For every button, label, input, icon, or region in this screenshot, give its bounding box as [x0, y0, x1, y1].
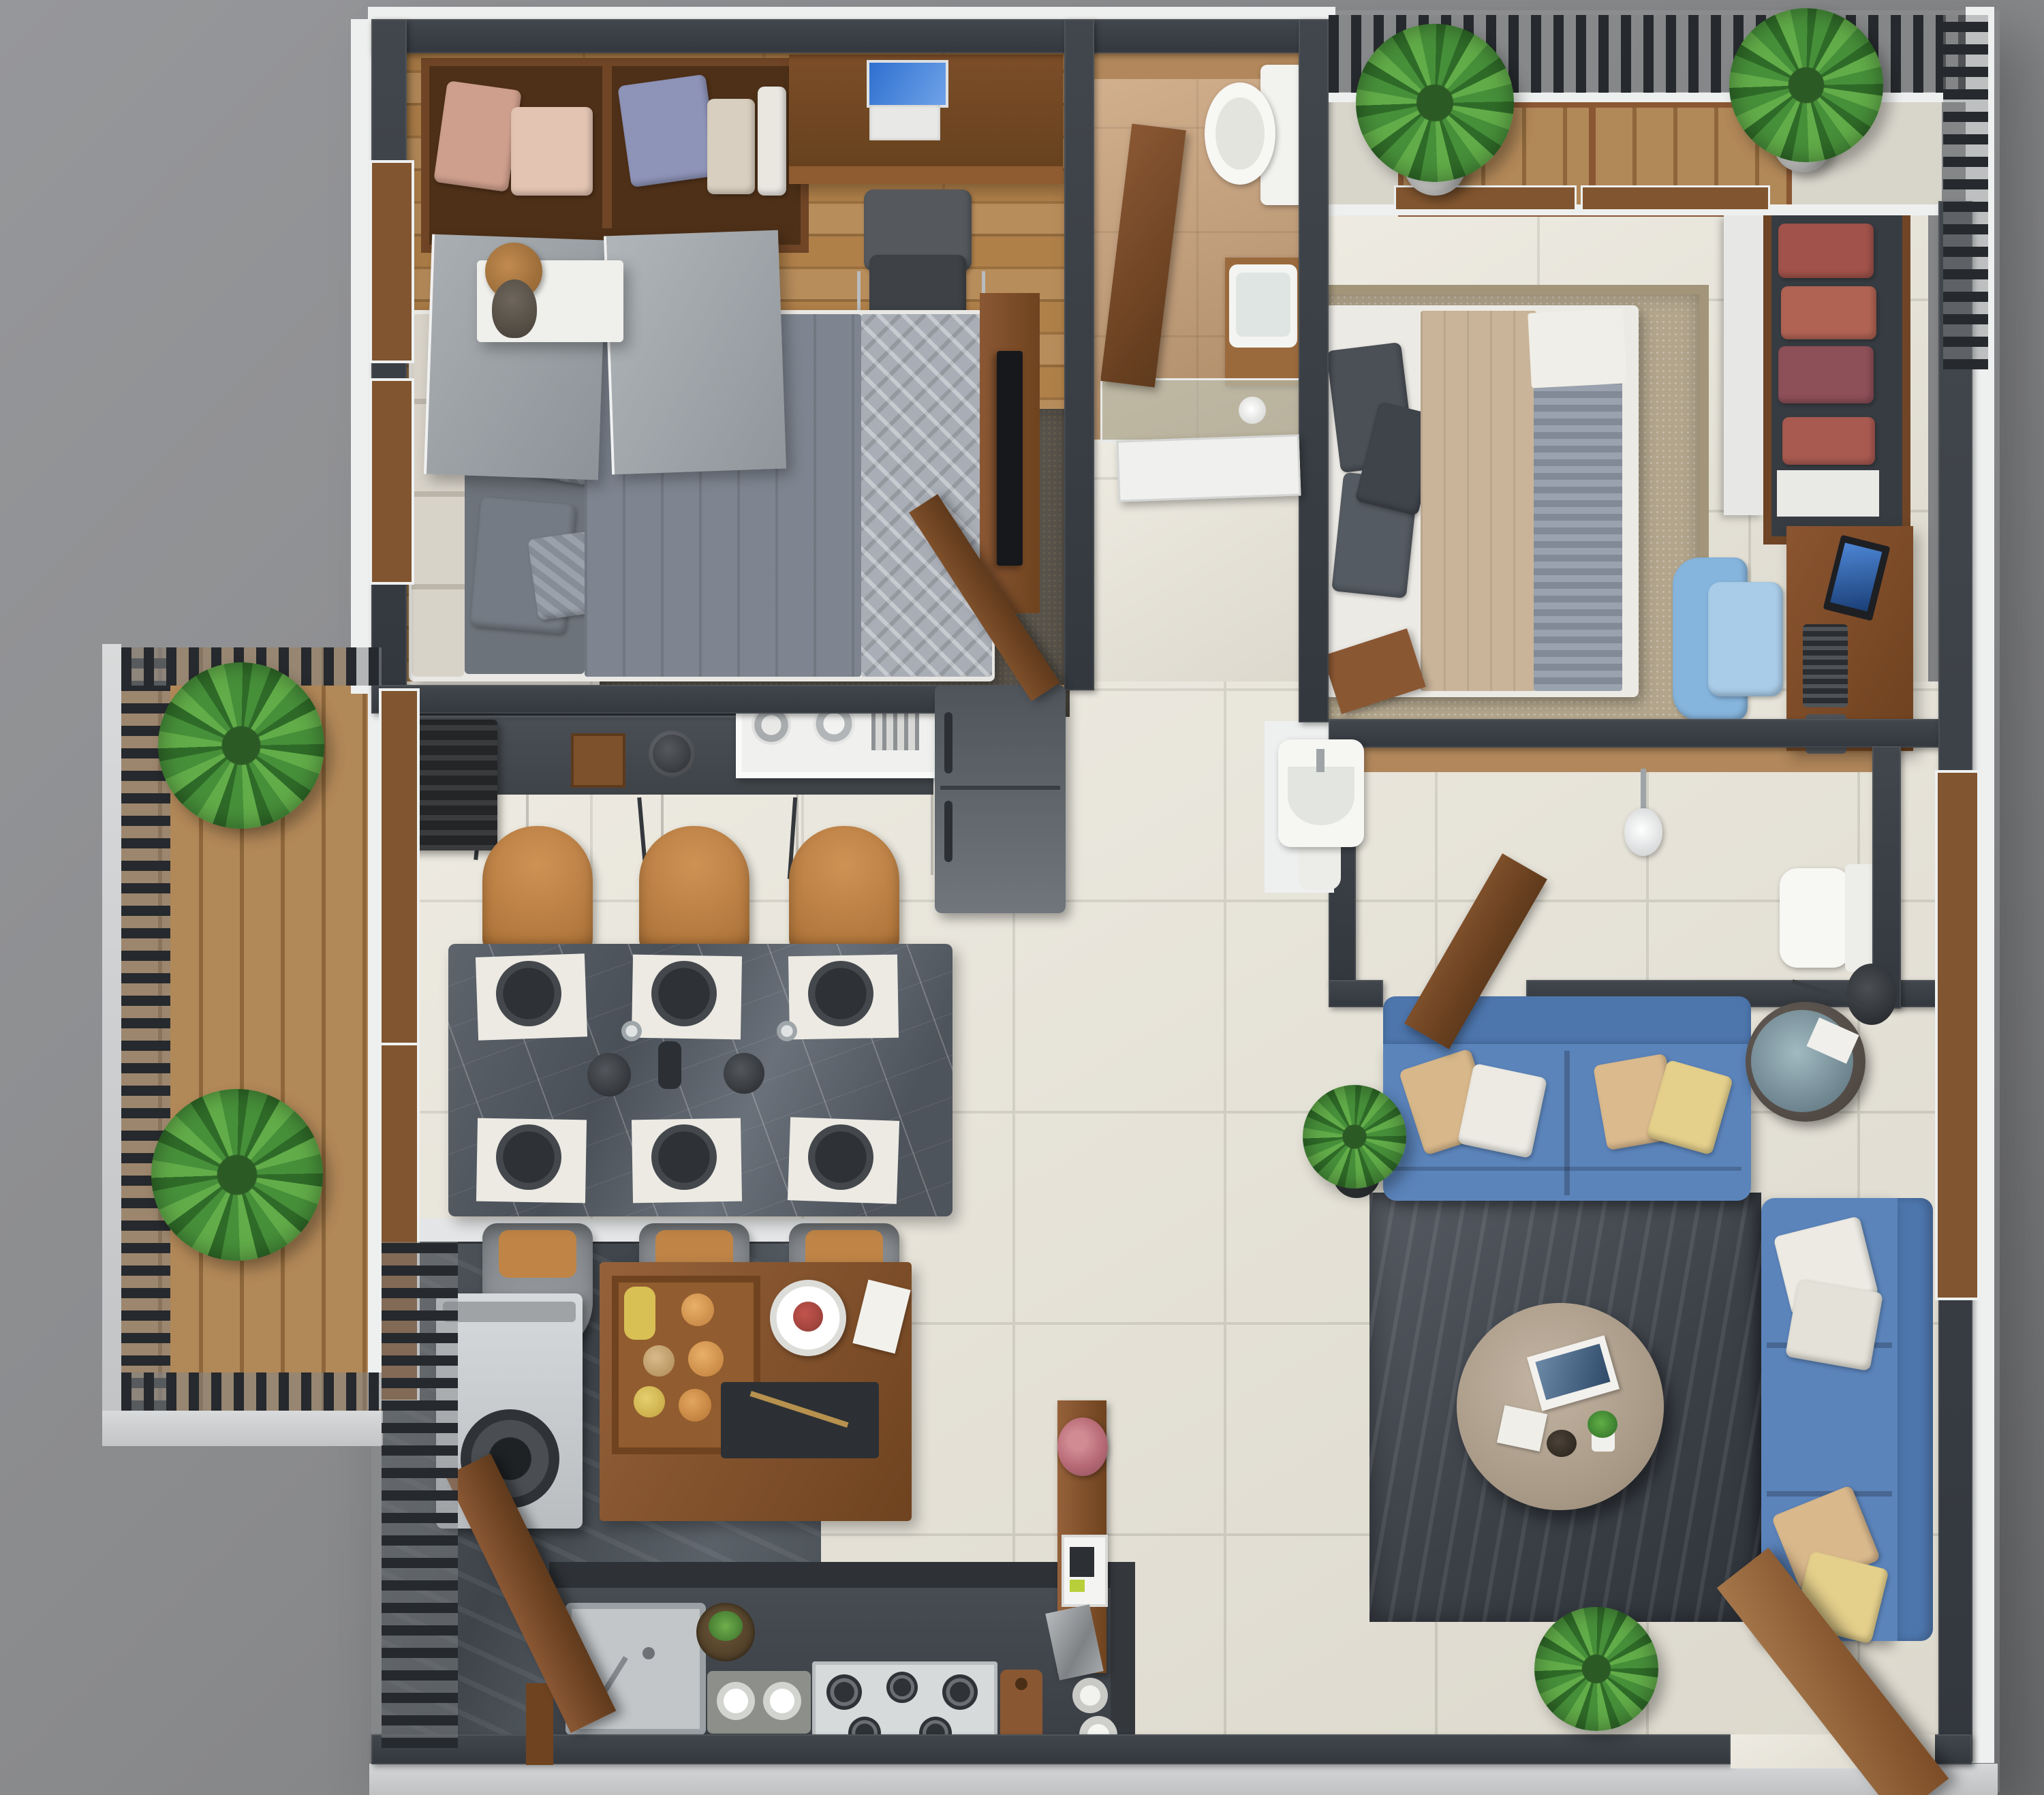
balcony2-railing-right	[1943, 15, 1988, 369]
wardrobe-sliding-door-right	[604, 230, 786, 475]
wardrobe2-white-shelf	[1777, 470, 1879, 517]
mini-plant	[1588, 1411, 1619, 1453]
balcony2-plant2	[1729, 8, 1883, 162]
mini-plant-leaves	[1588, 1411, 1617, 1438]
chair-bottom-1-seat	[499, 1230, 576, 1278]
utility-railing	[382, 1242, 458, 1748]
wardrobe	[421, 58, 809, 253]
wall-bed2-bottom	[1329, 719, 1942, 748]
decor-dark-item	[1547, 1430, 1577, 1457]
bedroom2-wardrobe-door	[1724, 215, 1763, 515]
red-towels-1	[1778, 224, 1874, 278]
desk-edge	[789, 166, 1063, 184]
jar-1	[717, 1682, 755, 1720]
plate-5	[651, 1124, 717, 1190]
refrigerator-handle-1	[944, 712, 953, 773]
toilet-1-seat	[1215, 97, 1265, 170]
serving-plate	[770, 1280, 846, 1356]
photo-frame-accent	[1070, 1580, 1085, 1592]
window-left-2	[369, 378, 414, 585]
wall-bottom	[371, 1734, 1731, 1764]
tv	[997, 351, 1023, 566]
floor-lamp-shade	[1846, 964, 1897, 1025]
folded-clothes-pink	[433, 80, 522, 192]
floor-plan-render	[0, 0, 2044, 1795]
plate-2	[651, 961, 717, 1026]
sofa-v-pillow-white-2	[1785, 1278, 1883, 1371]
balcony2-plant1	[1356, 24, 1514, 182]
photo-frame	[1062, 1535, 1108, 1607]
magazine-image	[1535, 1344, 1610, 1400]
wall-bed1-bath1	[1064, 19, 1094, 690]
window-right-living	[1935, 770, 1980, 1300]
fruit-tan	[643, 1345, 675, 1377]
outer-trim-top	[368, 7, 1335, 20]
side-balcony-railing-bottom	[121, 1372, 382, 1411]
plate-4	[496, 1124, 561, 1190]
washbasin-1	[1229, 264, 1297, 348]
folded-clothes-white	[758, 87, 786, 196]
burner-2	[886, 1672, 918, 1703]
plate-food	[793, 1302, 823, 1332]
fruit-yellow-2	[634, 1386, 665, 1417]
laptop-keyboard	[869, 105, 940, 140]
plate-3	[808, 961, 873, 1026]
counter-end-wall	[1111, 1562, 1135, 1736]
blue-chair-seat	[1708, 582, 1783, 696]
counter-backsplash	[549, 1562, 1115, 1591]
bedroom2-wardrobe	[1763, 204, 1910, 544]
dining-chair-top-2	[639, 826, 749, 954]
plate-6	[808, 1124, 873, 1190]
window-left-1	[369, 160, 414, 363]
jar-board	[707, 1671, 811, 1734]
herbs	[709, 1611, 743, 1641]
glass-screen-1	[1100, 378, 1303, 442]
red-towels-2	[1781, 286, 1876, 339]
shower-disc	[1624, 808, 1662, 856]
folded-clothes-rose	[511, 107, 593, 196]
shower-head	[1623, 769, 1664, 857]
laptop	[867, 60, 943, 142]
bedroom2-bed	[1325, 305, 1639, 697]
utensil	[749, 1391, 848, 1428]
lamp-shade	[492, 279, 537, 338]
red-towels-3	[1778, 346, 1874, 403]
serving-bowl-2	[724, 1053, 764, 1094]
washbasin-2-bowl	[1288, 767, 1354, 825]
utility-top-wall	[382, 1218, 821, 1242]
plate-1	[496, 961, 561, 1026]
keyboard	[1803, 624, 1848, 707]
refrigerator-door-seam	[940, 786, 1060, 790]
photo-frame-image	[1070, 1547, 1094, 1577]
magazine	[1527, 1335, 1620, 1411]
wall-bed1-bottom	[371, 685, 988, 714]
utensil-tray	[721, 1382, 879, 1458]
refrigerator	[935, 685, 1066, 913]
living-plant2	[1534, 1607, 1658, 1731]
coffee-box	[571, 733, 625, 788]
glass-2	[777, 1021, 797, 1041]
side-balcony-plant1	[158, 662, 324, 829]
wall-bath1-right	[1299, 19, 1329, 722]
fruit-bottle-yellow	[624, 1287, 655, 1340]
flower-bunch	[1057, 1417, 1108, 1476]
kettle	[649, 731, 695, 777]
laptop-screen	[867, 60, 948, 108]
jar-2	[763, 1682, 801, 1720]
burner-3	[942, 1674, 978, 1710]
decor-roll-1	[1072, 1678, 1108, 1713]
bed2-blanket-tan	[1421, 311, 1536, 691]
side-balcony-plant2	[151, 1089, 323, 1261]
quilted-runner	[861, 314, 992, 677]
wall-bath2-bottom-stub	[1329, 980, 1383, 1007]
bathroom1-open-door	[1117, 434, 1301, 502]
decor-card	[1497, 1405, 1547, 1452]
bottle	[658, 1041, 681, 1089]
burner-1	[826, 1674, 862, 1710]
fruit-orange-1	[681, 1293, 714, 1326]
side-balcony-outer-left	[102, 644, 121, 1414]
side-balcony-outer-bottom	[102, 1411, 383, 1446]
balcony2-frame-right	[1581, 185, 1770, 211]
glass-1	[621, 1021, 642, 1041]
herbs-bowl	[696, 1603, 755, 1661]
washbasin-1-bowl	[1236, 273, 1290, 337]
serving-bowl-1	[587, 1053, 631, 1096]
monitor-screen	[1830, 542, 1882, 611]
red-towels-4	[1782, 417, 1875, 465]
balcony-glass-door-frame-1	[379, 688, 420, 1048]
wardrobe-divider	[602, 66, 612, 228]
floor-lamp	[1831, 953, 1897, 1034]
sink-drain	[642, 1647, 655, 1659]
cutting-board-hole	[1015, 1678, 1027, 1690]
washbasin-2-tap	[1316, 749, 1325, 772]
sofa-h-tuft	[1393, 1167, 1741, 1171]
washbasin-2	[1278, 739, 1364, 847]
bed2-striped-sheet	[1534, 380, 1622, 691]
sofa-h-seam	[1564, 1051, 1570, 1195]
wall-top	[371, 19, 1332, 53]
bed2-white-sheet	[1528, 308, 1627, 388]
washer-control-panel	[443, 1302, 576, 1322]
fruit-orange-3	[679, 1389, 711, 1422]
coffee-table	[1457, 1303, 1664, 1510]
living-plant1	[1303, 1085, 1406, 1188]
toilet-1	[1205, 65, 1307, 208]
blue-office-chair	[1673, 544, 1787, 740]
refrigerator-handle-2	[944, 801, 953, 862]
folded-clothes-cream	[707, 99, 755, 194]
washbasin-2-pedestal	[1299, 845, 1341, 890]
utility-door-frame	[526, 1683, 553, 1765]
dining-chair-top-3	[789, 826, 899, 954]
toilet-paper-roll	[1239, 397, 1266, 424]
fruit-orange-2	[688, 1341, 724, 1377]
dining-chair-top-1	[482, 826, 593, 954]
table-lamp	[485, 243, 542, 345]
folded-clothes-blue	[617, 74, 719, 188]
